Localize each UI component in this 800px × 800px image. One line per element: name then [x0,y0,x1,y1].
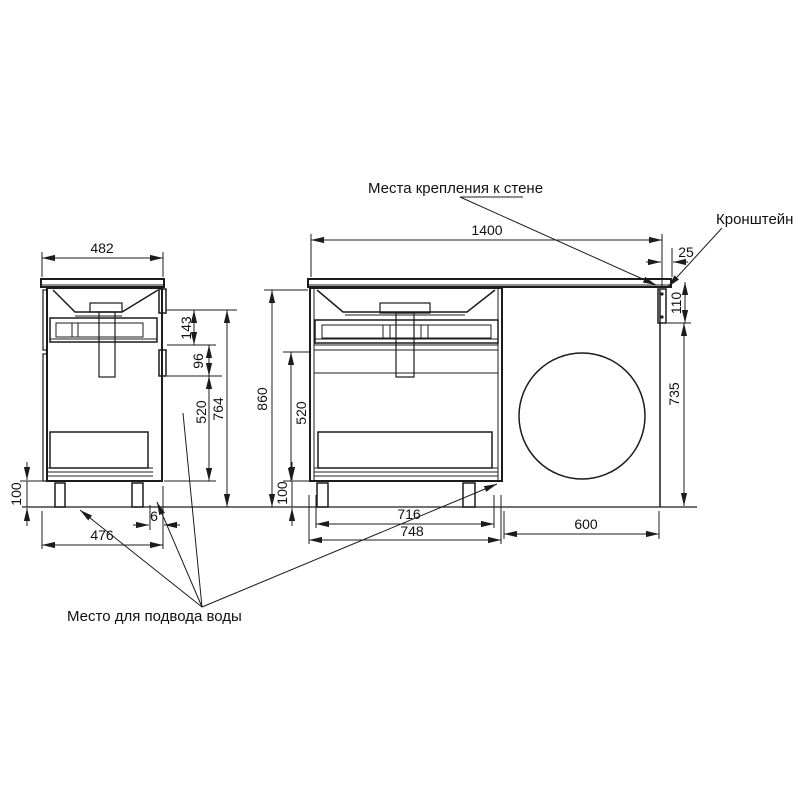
bracket-label: Кронштейн [716,211,793,228]
dim-side-top-offset: 143 [178,316,194,340]
front-view [308,279,671,507]
side-front-panel-upper [43,290,47,350]
side-drain-pipe [99,312,115,377]
dim-bracket-drop: 110 [668,292,684,315]
side-view [41,279,166,507]
washing-machine-drum [519,353,645,479]
technical-drawing-page: 482 100 476 6 143 96 520 764 [0,0,800,800]
front-leg-right [463,483,475,507]
dim-inner-width: 716 [397,506,421,522]
water-leader-2 [157,502,202,607]
side-lower-drawer [50,432,148,468]
dim-right-clearance: 735 [666,382,682,406]
dim-side-back-gap: 6 [150,508,158,524]
front-lower-drawer [318,432,492,468]
vanity-dimension-drawing: 482 100 476 6 143 96 520 764 [0,0,800,800]
wall-mount-label: Места крепления к стене [368,180,543,197]
side-countertop [41,279,164,287]
water-supply-label: Место для подвода воды [67,608,242,625]
bracket-screw-bottom [660,315,663,318]
front-basin [317,290,495,312]
water-leader-4 [202,484,497,607]
front-cabinet-body [310,288,502,481]
dim-cabinet-width: 748 [400,523,424,539]
dim-front-total-height: 860 [254,387,270,411]
side-basin [53,290,158,312]
dim-side-width: 482 [90,240,114,256]
side-leg-front [55,483,65,507]
dim-machine-space: 600 [574,516,598,532]
dim-side-body-height: 764 [210,397,226,421]
side-drawer-rail [50,318,157,342]
side-front-panel-lower [43,354,47,481]
dim-front-leg-height: 100 [274,481,290,505]
front-view-dimensions: 1400 25 110 735 860 520 100 716 [254,222,694,544]
dim-front-lower-section: 520 [293,401,309,425]
front-leg-left [317,483,328,507]
front-drawer-rail [315,320,498,343]
front-countertop [308,279,671,287]
dim-side-leg-height: 100 [8,482,24,506]
wall-mount-leader [460,197,656,285]
dim-bracket-offset: 25 [678,244,694,260]
bracket-screw-top [660,292,663,295]
bracket-leader [668,228,722,287]
dim-side-depth: 476 [90,527,114,543]
dim-side-inlet-height: 96 [190,353,206,369]
side-leg-back [132,483,143,507]
dim-side-lower-section: 520 [193,400,209,424]
side-drain-stub [90,303,122,312]
dim-front-total-width: 1400 [471,222,502,238]
water-leader-3 [183,413,202,607]
side-cabinet-body [47,288,162,481]
